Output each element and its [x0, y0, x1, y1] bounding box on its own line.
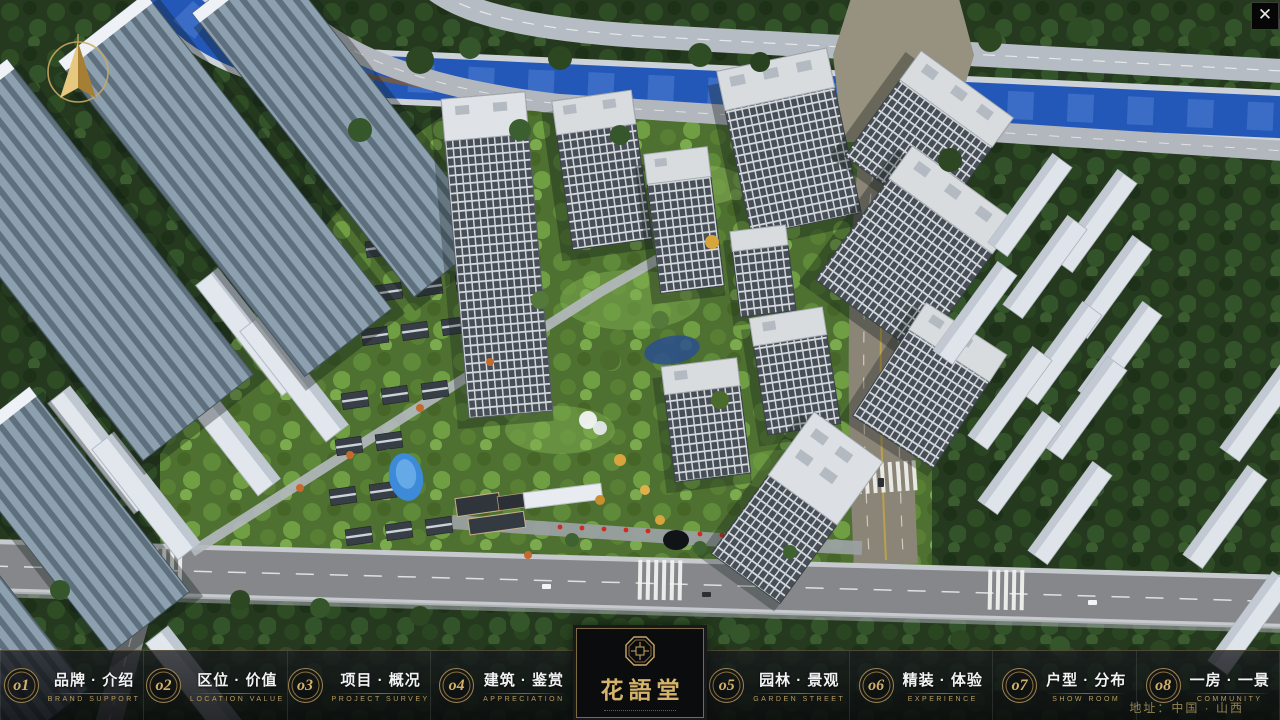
project-address: 地址：中国 · 山西 — [1129, 699, 1244, 716]
nav-label-zh: 区位 · 价值 — [197, 669, 277, 690]
nav-number-badge: o8 — [1146, 668, 1181, 703]
nav-label-en: SHOW ROOM — [1052, 696, 1120, 703]
nav-label-zh: 项目 · 概况 — [340, 669, 420, 690]
logo-subtext-line — [604, 710, 676, 711]
nav-label-zh: 一房 · 一景 — [1190, 669, 1270, 690]
close-button[interactable]: ✕ — [1251, 2, 1279, 30]
nav-item-interior[interactable]: o6 精装 · 体验 EXPERIENCE — [850, 651, 994, 720]
project-logo-panel: 花語堂 — [576, 628, 704, 718]
seal-emblem-icon — [624, 635, 656, 667]
nav-divider — [332, 693, 430, 694]
nav-item-project[interactable]: o3 项目 · 概况 PROJECT SURVEY — [288, 651, 431, 720]
nav-label-en: APPRECIATION — [483, 696, 565, 703]
nav-label-en: EXPERIENCE — [908, 696, 978, 703]
nav-label-zh: 品牌 · 介绍 — [54, 669, 134, 690]
nav-divider — [483, 693, 565, 694]
nav-label-en: BRAND SUPPORT — [48, 696, 141, 703]
nav-divider — [190, 693, 285, 694]
nav-divider — [48, 693, 141, 694]
nav-label-zh: 户型 · 分布 — [1046, 669, 1126, 690]
nav-number-badge: o3 — [288, 668, 323, 703]
nav-label-en: GARDEN STREET — [753, 696, 845, 703]
nav-divider — [1046, 693, 1126, 694]
nav-label-en: LOCATION VALUE — [190, 696, 285, 703]
nav-item-floorplan[interactable]: o7 户型 · 分布 SHOW ROOM — [993, 651, 1137, 720]
nav-item-garden[interactable]: o5 园林 · 景观 GARDEN STREET — [706, 651, 850, 720]
nav-divider — [903, 693, 983, 694]
nav-divider — [753, 693, 845, 694]
nav-group-left: o1 品牌 · 介绍 BRAND SUPPORT o2 区位 · 价值 LOCA… — [0, 651, 574, 720]
nav-number-badge: o6 — [859, 668, 894, 703]
nav-item-brand[interactable]: o1 品牌 · 介绍 BRAND SUPPORT — [0, 651, 144, 720]
aerial-render — [0, 0, 1280, 720]
property-map-view[interactable]: ✕ o1 品牌 · 介绍 BRAND SUPPORT o2 区位 · 价值 LO… — [0, 0, 1280, 720]
nav-item-location[interactable]: o2 区位 · 价值 LOCATION VALUE — [144, 651, 287, 720]
nav-number-badge: o2 — [146, 668, 181, 703]
nav-number-badge: o7 — [1002, 668, 1037, 703]
nav-number-badge: o5 — [709, 668, 744, 703]
nav-label-en: PROJECT SURVEY — [332, 696, 430, 703]
nav-label-zh: 建筑 · 鉴赏 — [484, 669, 564, 690]
close-icon: ✕ — [1258, 5, 1272, 25]
project-logo-title: 花語堂 — [596, 671, 685, 705]
nav-label-zh: 精装 · 体验 — [903, 669, 983, 690]
nav-label-zh: 园林 · 景观 — [759, 669, 839, 690]
nav-number-badge: o1 — [4, 668, 39, 703]
nav-divider — [1190, 693, 1270, 694]
nav-number-badge: o4 — [439, 668, 474, 703]
nav-item-architecture[interactable]: o4 建筑 · 鉴赏 APPRECIATION — [431, 651, 574, 720]
